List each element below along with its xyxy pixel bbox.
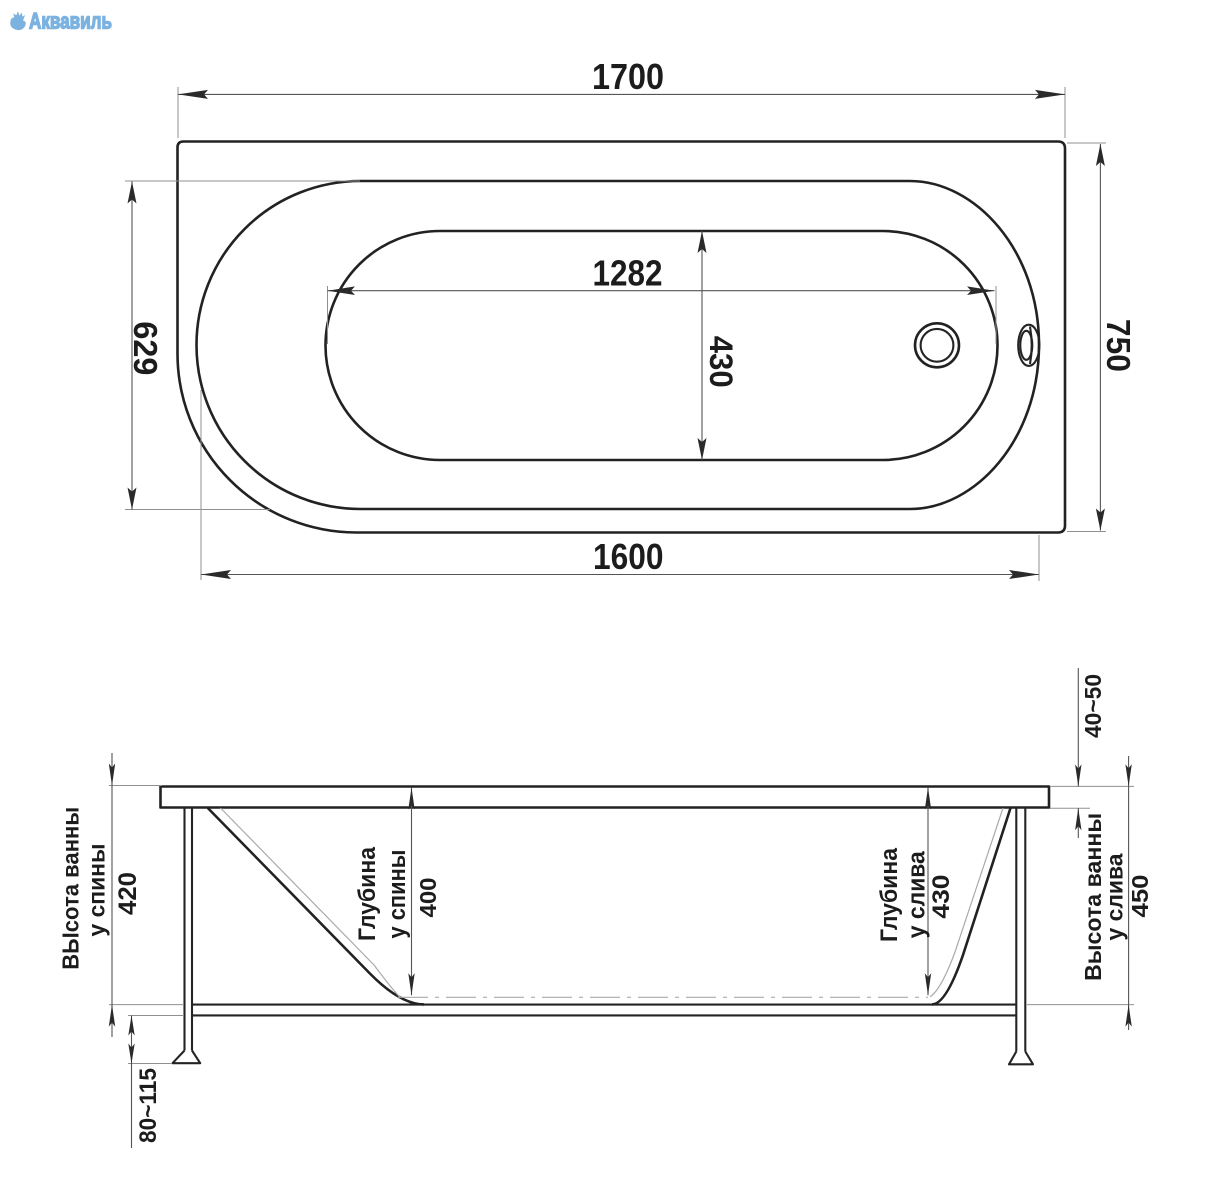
svg-text:Аквавиль: Аквавиль xyxy=(29,9,112,34)
svg-text:420: 420 xyxy=(114,872,142,915)
svg-text:80~115: 80~115 xyxy=(135,1068,162,1143)
svg-text:430: 430 xyxy=(928,875,955,919)
svg-text:450: 450 xyxy=(1127,875,1153,918)
svg-text:750: 750 xyxy=(1100,319,1137,372)
svg-text:у слива: у слива xyxy=(904,851,931,939)
svg-text:629: 629 xyxy=(127,321,164,375)
svg-text:400: 400 xyxy=(415,878,441,918)
svg-text:1600: 1600 xyxy=(593,536,664,577)
svg-text:у слива: у слива xyxy=(1101,853,1127,940)
svg-text:1700: 1700 xyxy=(592,56,664,97)
svg-text:Глубина: Глубина xyxy=(876,847,903,942)
svg-text:Глубина: Глубина xyxy=(354,846,381,941)
svg-text:ВЫсота ванны: ВЫсота ванны xyxy=(57,807,83,970)
svg-text:у спины: у спины xyxy=(84,844,110,937)
svg-text:1282: 1282 xyxy=(593,253,663,294)
svg-text:40~50: 40~50 xyxy=(1080,674,1106,738)
svg-text:у спины: у спины xyxy=(384,850,411,939)
svg-text:430: 430 xyxy=(703,336,739,388)
